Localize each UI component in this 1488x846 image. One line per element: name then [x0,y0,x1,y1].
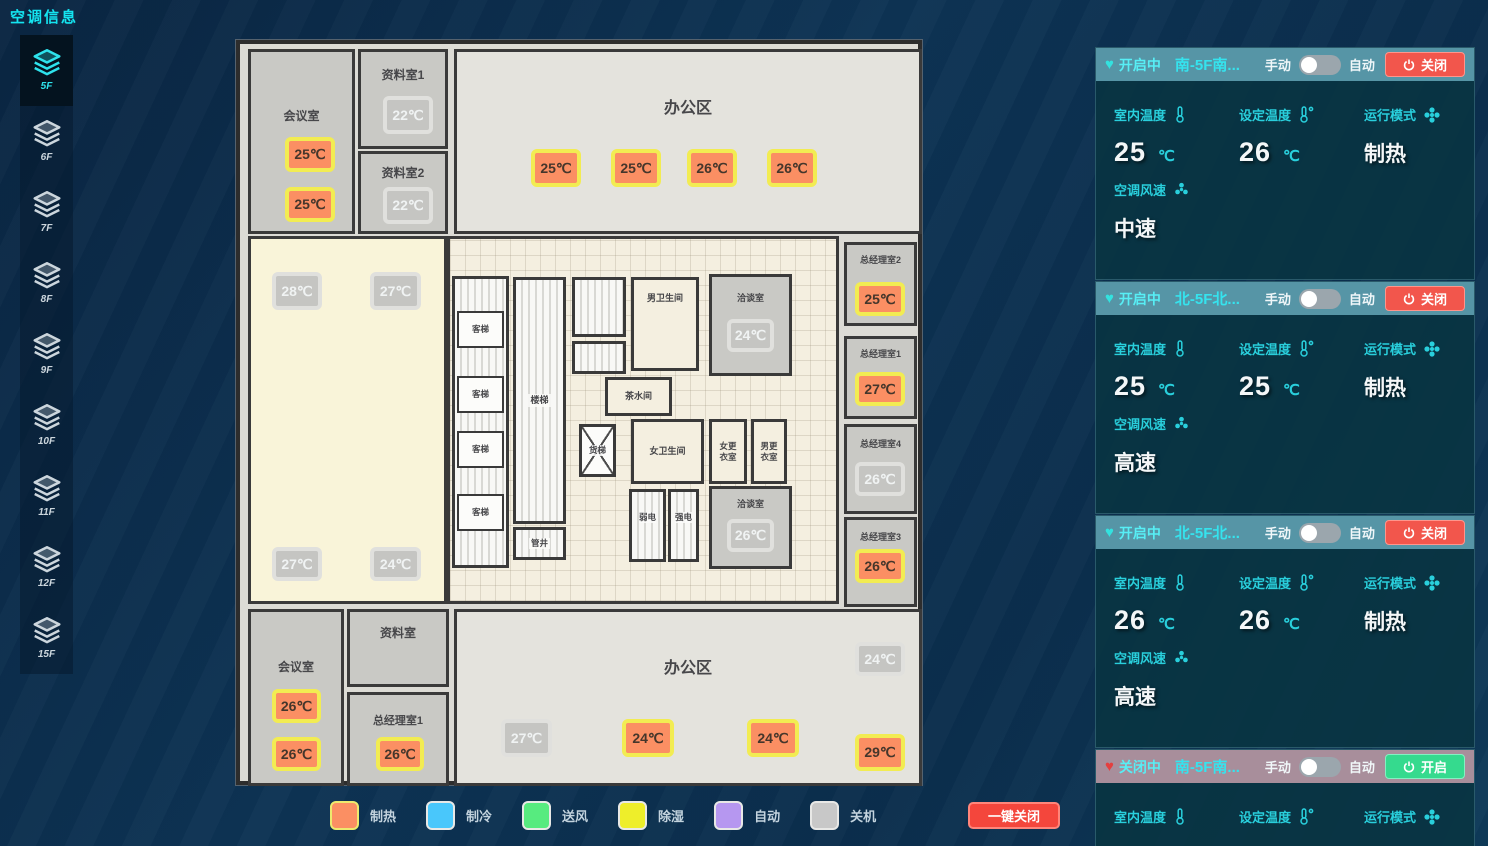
auto-label: 自动 [1349,523,1375,542]
sidebar-item-12f[interactable]: 12F [20,532,73,603]
floor-label: 5F [41,81,53,92]
power-icon [1403,59,1415,71]
legend-item-fan: 送风 [522,801,588,830]
panel-body: 室内温度 设定温度 运行模式 [1096,783,1474,826]
manual-label: 手动 [1265,523,1291,542]
floor-label: 15F [38,649,55,660]
indoor-temp-label: 室内温度 [1114,807,1166,826]
hvac-dashboard: 空调信息 5F 6F 7F 8F 9F 10F 11F [0,0,1488,846]
mode-fan-icon [1424,107,1440,123]
mode-legend: 制热 制冷 送风 除湿 自动 关机 [330,801,876,830]
run-mode-label: 运行模式 [1364,105,1416,124]
ac-unit-panel-3: ♥ 开启中 北-5F北... 手动 自动 关闭 室内温度 设定温度 运行模式 2… [1095,515,1475,748]
set-temp-value: 26 [1239,605,1271,635]
sidebar-item-5f[interactable]: 5F [20,35,73,106]
fan-speed-value: 高速 [1114,681,1474,711]
temp-badge[interactable]: 25℃ [611,149,661,187]
set-temp-value: 26 [1239,137,1271,167]
run-mode-label: 运行模式 [1364,339,1416,358]
room-freight-lift: 货梯 [579,424,616,477]
panel-header: ♥ 开启中 北-5F北... 手动 自动 关闭 [1096,516,1474,549]
manual-auto-toggle[interactable] [1299,55,1341,75]
set-temp-value: 25 [1239,371,1271,401]
room-passenger-lift-4: 客梯 [457,494,504,531]
room-pipe-shaft: 管井 [513,527,566,560]
thermometer-icon [1174,808,1186,825]
fan-speed-value: 中速 [1114,213,1474,243]
legend-item-dry: 除湿 [618,801,684,830]
ac-unit-panel-4: ♥ 关闭中 南-5F南... 手动 自动 开启 室内温度 设定温度 运行模式 [1095,749,1475,846]
unit-name: 北-5F北... [1175,522,1265,543]
temp-badge[interactable]: 26℃ [855,462,905,496]
power-button[interactable]: 关闭 [1385,520,1465,545]
unit-name: 南-5F南... [1175,756,1265,777]
room-low-voltage: 弱电 [629,489,666,562]
ac-unit-panel-1: ♥ 开启中 南-5F南... 手动 自动 关闭 室内温度 设定温度 运行模式 2… [1095,47,1475,280]
manual-label: 手动 [1265,289,1291,308]
layers-icon [32,475,62,502]
temp-badge[interactable]: 26℃ [767,149,817,187]
floor-sidebar: 5F 6F 7F 8F 9F 10F 11F 12F [20,35,73,674]
room-passenger-lift-1: 客梯 [457,311,504,348]
mode-fan-icon [1424,575,1440,591]
panel-header: ♥ 关闭中 南-5F南... 手动 自动 开启 [1096,750,1474,783]
floor-label: 6F [41,152,53,163]
auto-label: 自动 [1349,289,1375,308]
heat-swatch [330,801,359,830]
power-status-label: 开启中 [1119,523,1161,543]
temp-badge[interactable]: 27℃ [855,372,905,406]
run-mode-label: 运行模式 [1364,573,1416,592]
power-button[interactable]: 关闭 [1385,52,1465,77]
fan-speed-value: 高速 [1114,447,1474,477]
toggle-knob [1301,525,1317,541]
power-button[interactable]: 关闭 [1385,286,1465,311]
layers-icon [32,191,62,218]
room-womens-toilet: 女卫生间 [631,419,704,484]
indoor-temp-label: 室内温度 [1114,573,1166,592]
power-status-icon: ♥ [1105,759,1114,774]
thermometer-icon [1174,106,1186,123]
auto-swatch [714,801,743,830]
sidebar-item-11f[interactable]: 11F [20,461,73,532]
room-data-bottom: 资料室 [347,609,449,687]
power-button[interactable]: 开启 [1385,754,1465,779]
thermometer-icon [1174,340,1186,357]
room-tea: 茶水间 [605,377,672,416]
toggle-knob [1301,57,1317,73]
run-mode-label: 运行模式 [1364,807,1416,826]
fan-swatch [522,801,551,830]
panel-body: 室内温度 设定温度 运行模式 25℃ 26℃ 制热 空调风速 中速 [1096,81,1474,243]
sidebar-item-7f[interactable]: 7F [20,177,73,248]
floor-label: 12F [38,578,55,589]
temp-badge[interactable]: 26℃ [376,737,424,771]
run-mode-value: 制热 [1364,606,1474,636]
sidebar-item-8f[interactable]: 8F [20,248,73,319]
mode-fan-icon [1424,341,1440,357]
room-mens-toilet: 男卫生间 [631,277,699,371]
temp-badge[interactable]: 25℃ [531,149,581,187]
cool-swatch [426,801,455,830]
power-icon [1403,293,1415,305]
temp-badge[interactable]: 28℃ [272,272,322,310]
room-high-voltage: 强电 [668,489,699,562]
panel-body: 室内温度 设定温度 运行模式 26℃ 26℃ 制热 空调风速 高速 [1096,549,1474,711]
power-status-label: 开启中 [1119,55,1161,75]
legend-item-off: 关机 [810,801,876,830]
unit-name: 北-5F北... [1175,288,1265,309]
indoor-temp-label: 室内温度 [1114,105,1166,124]
set-temp-label: 设定温度 [1239,339,1291,358]
set-temp-label: 设定温度 [1239,807,1291,826]
temp-badge[interactable]: 29℃ [855,734,905,771]
panel-header: ♥ 开启中 北-5F北... 手动 自动 关闭 [1096,282,1474,315]
power-status-label: 关闭中 [1119,757,1161,777]
run-mode-value: 制热 [1364,138,1474,168]
manual-auto-toggle[interactable] [1299,757,1341,777]
floor-label: 9F [41,365,53,376]
room-office-bottom: 办公区 [454,609,922,786]
temp-badge[interactable]: 24℃ [747,719,799,757]
floor-label: 7F [41,223,53,234]
power-status-label: 开启中 [1119,289,1161,309]
temp-badge[interactable]: 26℃ [272,737,321,771]
manual-label: 手动 [1265,757,1291,776]
thermometer-set-icon [1299,106,1314,123]
close-all-button[interactable]: 一键关闭 [968,802,1060,829]
temp-badge[interactable]: 24℃ [622,719,674,757]
page-title: 空调信息 [10,6,78,27]
fan-speed-label: 空调风速 [1114,180,1166,199]
set-temp-label: 设定温度 [1239,573,1291,592]
legend-item-heat: 制热 [330,801,396,830]
room-mens-locker: 男更衣室 [751,419,787,484]
lift-lobby-lower [572,341,626,374]
room-passenger-lift-3: 客梯 [457,431,504,468]
indoor-temp-value: 25 [1114,371,1146,401]
floor-label: 10F [38,436,55,447]
temp-badge[interactable]: 26℃ [727,519,774,552]
fan-speed-label: 空调风速 [1114,648,1166,667]
sidebar-item-9f[interactable]: 9F [20,319,73,390]
layers-icon [32,49,62,76]
temp-badge[interactable]: 26℃ [855,549,905,583]
room-stairs: 楼梯 [513,277,566,524]
power-status-icon: ♥ [1105,525,1114,540]
sidebar-item-6f[interactable]: 6F [20,106,73,177]
temp-badge[interactable]: 27℃ [501,719,552,757]
temp-badge[interactable]: 22℃ [383,187,433,224]
temp-badge[interactable]: 25℃ [285,187,335,222]
layers-icon [32,262,62,289]
temp-badge[interactable]: 24℃ [855,642,905,676]
sidebar-item-10f[interactable]: 10F [20,390,73,461]
run-mode-value: 制热 [1364,372,1474,402]
manual-auto-toggle[interactable] [1299,523,1341,543]
floor-plan: 会议室 资料室1 资料室2 办公区 客梯 客梯 客梯 客梯 楼梯 管 [236,40,922,785]
layers-icon [32,120,62,147]
fan-icon [1174,650,1189,665]
layers-icon [32,333,62,360]
sidebar-item-15f[interactable]: 15F [20,603,73,674]
room-womens-locker: 女更衣室 [709,419,747,484]
unit-name: 南-5F南... [1175,54,1265,75]
layers-icon [32,404,62,431]
dry-swatch [618,801,647,830]
temp-badge[interactable]: 26℃ [687,149,737,187]
toggle-knob [1301,291,1317,307]
panel-header: ♥ 开启中 南-5F南... 手动 自动 关闭 [1096,48,1474,81]
thermometer-set-icon [1299,808,1314,825]
off-swatch [810,801,839,830]
panel-body: 室内温度 设定温度 运行模式 25℃ 25℃ 制热 空调风速 高速 [1096,315,1474,477]
manual-auto-toggle[interactable] [1299,289,1341,309]
temp-badge[interactable]: 27℃ [370,272,421,310]
temp-badge[interactable]: 25℃ [855,282,905,316]
temp-badge[interactable]: 27℃ [272,547,322,581]
thermometer-set-icon [1299,574,1314,591]
room-passenger-lift-2: 客梯 [457,376,504,413]
thermometer-set-icon [1299,340,1314,357]
floor-label: 11F [38,507,55,518]
temp-badge[interactable]: 24℃ [370,547,421,581]
power-icon [1403,527,1415,539]
ac-unit-panel-2: ♥ 开启中 北-5F北... 手动 自动 关闭 室内温度 设定温度 运行模式 2… [1095,281,1475,514]
temp-badge[interactable]: 26℃ [272,689,321,723]
auto-label: 自动 [1349,757,1375,776]
toggle-knob [1301,759,1317,775]
temp-badge[interactable]: 22℃ [383,96,433,134]
set-temp-label: 设定温度 [1239,105,1291,124]
indoor-temp-label: 室内温度 [1114,339,1166,358]
manual-label: 手动 [1265,55,1291,74]
fan-speed-label: 空调风速 [1114,414,1166,433]
auto-label: 自动 [1349,55,1375,74]
floor-label: 8F [41,294,53,305]
fan-icon [1174,182,1189,197]
legend-item-cool: 制冷 [426,801,492,830]
mode-fan-icon [1424,809,1440,825]
fan-icon [1174,416,1189,431]
power-icon [1403,761,1415,773]
layers-icon [32,617,62,644]
indoor-temp-value: 25 [1114,137,1146,167]
power-status-icon: ♥ [1105,291,1114,306]
room-office-top: 办公区 [454,49,922,234]
temp-badge[interactable]: 25℃ [285,137,335,172]
layers-icon [32,546,62,573]
legend-item-auto: 自动 [714,801,780,830]
indoor-temp-value: 26 [1114,605,1146,635]
lift-lobby-upper [572,277,626,337]
temp-badge[interactable]: 24℃ [727,319,774,352]
power-status-icon: ♥ [1105,57,1114,72]
thermometer-icon [1174,574,1186,591]
